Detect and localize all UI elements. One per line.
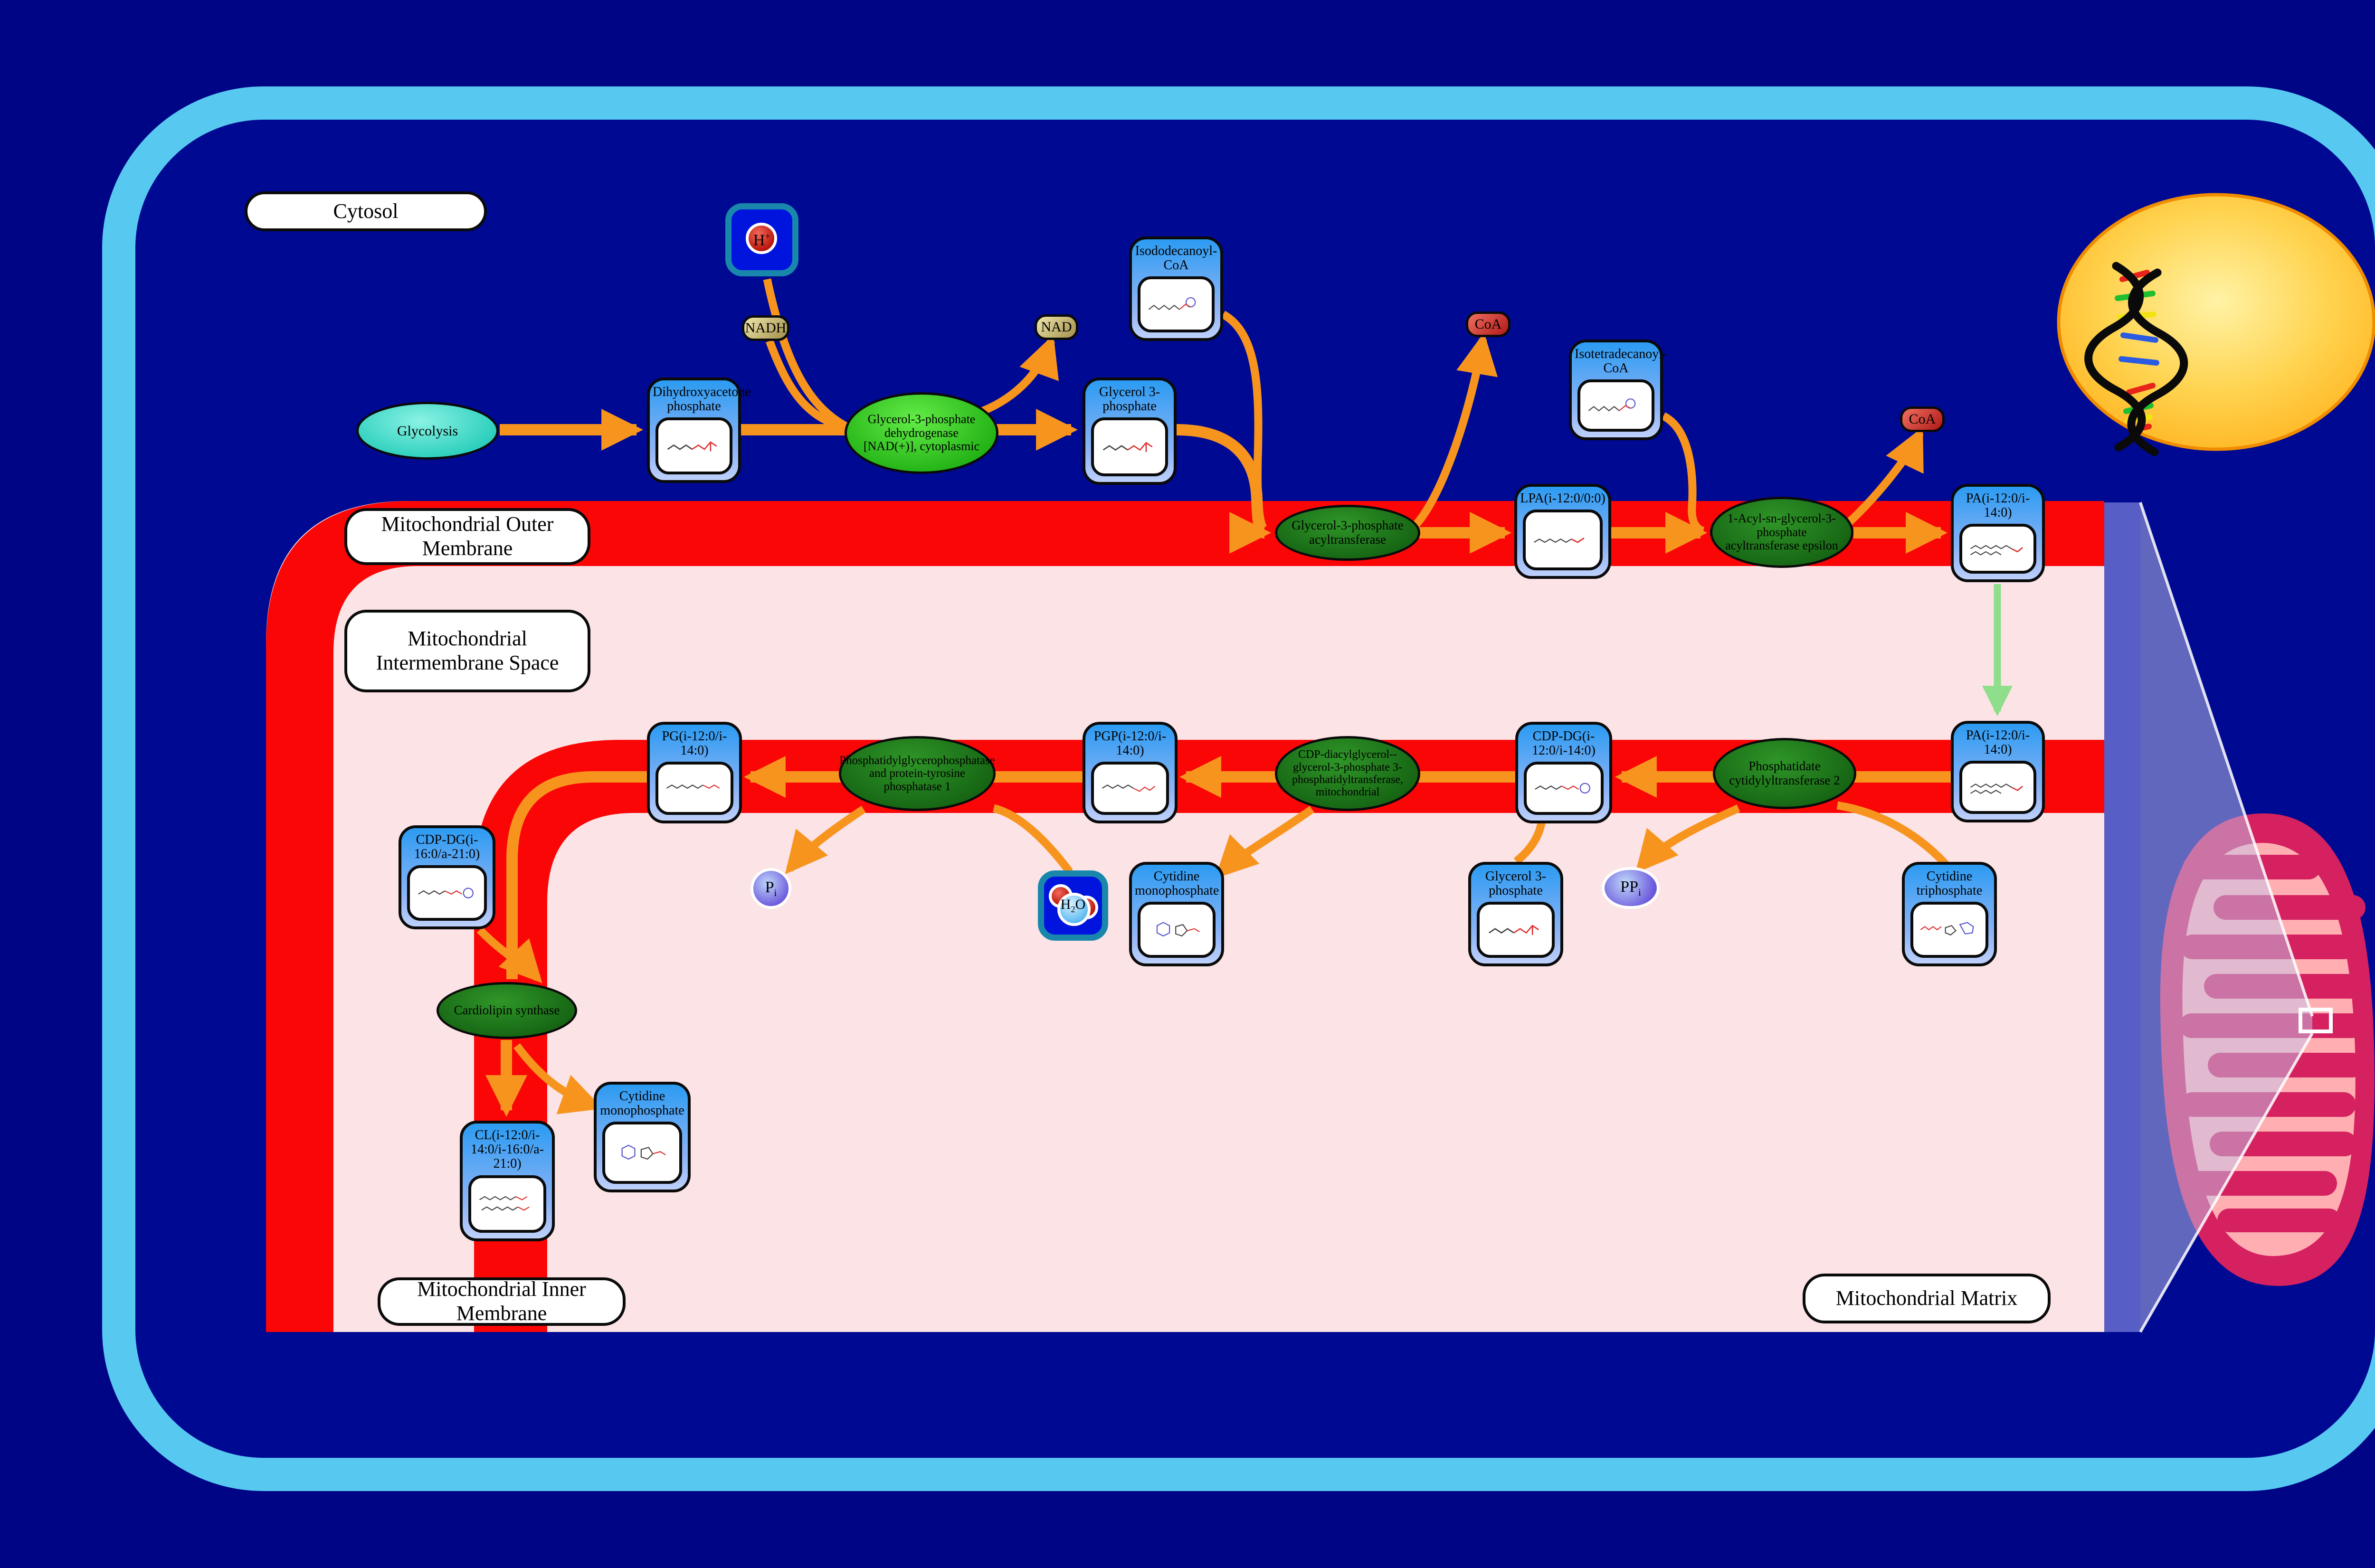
cofactor-label: NADH <box>745 320 787 336</box>
region-label-text: Mitochondrial Inner Membrane <box>387 1277 616 1325</box>
region-label-inner-membrane[interactable]: Mitochondrial Inner Membrane <box>378 1277 626 1326</box>
metabolite-node-cdpdg[interactable]: CDP-DG(i-12:0/i-14:0) <box>1515 722 1612 823</box>
ppi-label: PPi <box>1620 878 1641 898</box>
enzyme-label: Cardiolipin synthase <box>454 1003 560 1018</box>
cofactor-node-water[interactable]: H2O <box>1038 870 1108 941</box>
region-label-text: Cytosol <box>333 199 399 224</box>
cofactor-node-coa-2[interactable]: CoA <box>1900 406 1945 432</box>
enzyme-node-agpat[interactable]: 1-Acyl-sn-glycerol-3-phosphate acyltrans… <box>1710 497 1853 568</box>
metabolite-label: CDP-DG(i-16:0/a-21:0) <box>401 828 493 863</box>
metabolite-node-cmp-inner[interactable]: Cytidine monophosphate <box>594 1082 691 1192</box>
proton-label: H+ <box>731 209 792 270</box>
metabolite-label: CDP-DG(i-12:0/i-14:0) <box>1518 725 1609 760</box>
nucleus <box>2059 195 2374 452</box>
enzyme-node-crls1[interactable]: Cardiolipin synthase <box>437 982 577 1039</box>
molecule-structure <box>1091 762 1169 815</box>
molecule-structure <box>1577 379 1654 432</box>
pi-label: Pi <box>765 878 777 899</box>
enzyme-label: CDP-diacylglycerol--glycerol-3-phosphate… <box>1290 748 1406 799</box>
enzyme-node-gpat[interactable]: Glycerol-3-phosphate acyltransferase <box>1275 505 1420 561</box>
enzyme-node-ptpmt1[interactable]: Phosphatidylglycerophosphatase and prote… <box>839 736 996 811</box>
enzyme-label: Phosphatidylglycerophosphatase and prote… <box>839 754 995 793</box>
molecule-structure <box>407 865 487 921</box>
metabolite-label: Cytidine monophosphate <box>1132 865 1221 900</box>
metabolite-node-dhap[interactable]: Dihydroxyacetone phosphate <box>647 378 741 483</box>
region-label-text: Mitochondrial Intermembrane Space <box>354 627 581 675</box>
metabolite-node-ctp[interactable]: Cytidine triphosphate <box>1902 862 1997 966</box>
molecule-structure <box>1138 902 1216 958</box>
metabolite-label: LPA(i-12:0/0:0) <box>1517 487 1608 508</box>
molecule-structure <box>1477 902 1555 958</box>
metabolite-node-cmp-matrix[interactable]: Cytidine monophosphate <box>1129 862 1224 966</box>
enzyme-node-cds2[interactable]: Phosphatidate cytidylyltransferase 2 <box>1713 738 1856 809</box>
metabolite-label: Cytidine monophosphate <box>597 1085 688 1120</box>
water-label: H2O <box>1044 877 1102 935</box>
molecule-structure <box>602 1122 682 1184</box>
metabolite-node-cdpdg2[interactable]: CDP-DG(i-16:0/a-21:0) <box>399 825 495 929</box>
metabolite-label: Cytidine triphosphate <box>1905 865 1994 900</box>
molecule-structure <box>1959 761 2036 814</box>
region-label-cytosol[interactable]: Cytosol <box>245 191 487 231</box>
molecule-structure <box>655 417 732 474</box>
enzyme-label: Phosphatidate cytidylyltransferase 2 <box>1728 759 1842 787</box>
metabolite-label: Dihydroxyacetone phosphate <box>650 380 738 416</box>
region-label-intermembrane-space[interactable]: Mitochondrial Intermembrane Space <box>344 610 590 692</box>
molecule-structure <box>655 762 733 815</box>
metabolite-node-cl[interactable]: CL(i-12:0/i-14:0/i-16:0/a-21:0) <box>460 1121 555 1241</box>
cofactor-label: NAD <box>1041 319 1072 335</box>
cofactor-node-coa-1[interactable]: CoA <box>1466 312 1510 337</box>
region-label-matrix[interactable]: Mitochondrial Matrix <box>1803 1274 2051 1323</box>
molecule-structure <box>468 1175 546 1233</box>
metabolite-label: PG(i-12:0/i-14:0) <box>650 725 739 760</box>
metabolite-label: PA(i-12:0/i-14:0) <box>1954 487 2042 522</box>
cofactor-node-ppi[interactable]: PPi <box>1602 867 1660 909</box>
process-label: Glycolysis <box>397 423 458 439</box>
metabolite-node-pgp[interactable]: PGP(i-12:0/i-14:0) <box>1083 722 1178 823</box>
metabolite-node-isotetradecanoyl-coa[interactable]: Isotetradecanoyl-CoA <box>1569 340 1663 440</box>
metabolite-node-lpa[interactable]: LPA(i-12:0/0:0) <box>1514 484 1611 579</box>
metabolite-node-pg[interactable]: PG(i-12:0/i-14:0) <box>647 722 742 823</box>
molecule-structure <box>1959 524 2036 574</box>
region-label-text: Mitochondrial Matrix <box>1836 1286 2018 1311</box>
molecule-structure <box>1091 417 1168 476</box>
enzyme-label: Glycerol-3-phosphate dehydrogenase [NAD(… <box>859 413 984 453</box>
metabolite-label: Isotetradecanoyl-CoA <box>1572 342 1660 378</box>
metabolite-label: Isododecanoyl-CoA <box>1132 239 1220 274</box>
region-label-text: Mitochondrial Outer Membrane <box>354 512 581 560</box>
molecule-structure <box>1138 276 1215 332</box>
enzyme-node-gpd1[interactable]: Glycerol-3-phosphate dehydrogenase [NAD(… <box>845 392 998 474</box>
cofactor-node-pi[interactable]: Pi <box>750 868 791 909</box>
enzyme-label: Glycerol-3-phosphate acyltransferase <box>1290 519 1406 547</box>
pathway-canvas: Cytosol Mitochondrial Outer Membrane Mit… <box>0 0 2375 1568</box>
metabolite-label: Glycerol 3-phosphate <box>1085 380 1174 416</box>
cofactor-node-nad[interactable]: NAD <box>1035 314 1078 340</box>
process-node-glycolysis[interactable]: Glycolysis <box>356 402 499 460</box>
enzyme-node-pgs1[interactable]: CDP-diacylglycerol--glycerol-3-phosphate… <box>1275 736 1420 811</box>
metabolite-label: Glycerol 3-phosphate <box>1471 865 1560 900</box>
metabolite-label: PGP(i-12:0/i-14:0) <box>1085 725 1175 760</box>
cofactor-node-nadh[interactable]: NADH <box>742 315 789 341</box>
metabolite-label: CL(i-12:0/i-14:0/i-16:0/a-21:0) <box>463 1124 552 1173</box>
molecule-structure <box>1523 510 1603 570</box>
metabolite-node-g3p-small[interactable]: Glycerol 3-phosphate <box>1468 862 1563 966</box>
metabolite-node-pa-inner[interactable]: PA(i-12:0/i-14:0) <box>1951 721 2045 822</box>
metabolite-node-isododecanoyl-coa[interactable]: Isododecanoyl-CoA <box>1129 236 1223 341</box>
molecule-structure <box>1524 762 1604 815</box>
cofactor-label: CoA <box>1909 411 1936 427</box>
metabolite-label: PA(i-12:0/i-14:0) <box>1954 724 2042 759</box>
molecule-structure <box>1910 902 1988 958</box>
enzyme-label: 1-Acyl-sn-glycerol-3-phosphate acyltrans… <box>1725 512 1839 553</box>
region-label-outer-membrane[interactable]: Mitochondrial Outer Membrane <box>344 508 590 565</box>
metabolite-node-g3p[interactable]: Glycerol 3-phosphate <box>1083 378 1177 485</box>
cofactor-label: CoA <box>1475 316 1502 332</box>
cofactor-node-proton[interactable]: H+ <box>725 203 798 276</box>
metabolite-node-pa-outer[interactable]: PA(i-12:0/i-14:0) <box>1951 484 2045 582</box>
